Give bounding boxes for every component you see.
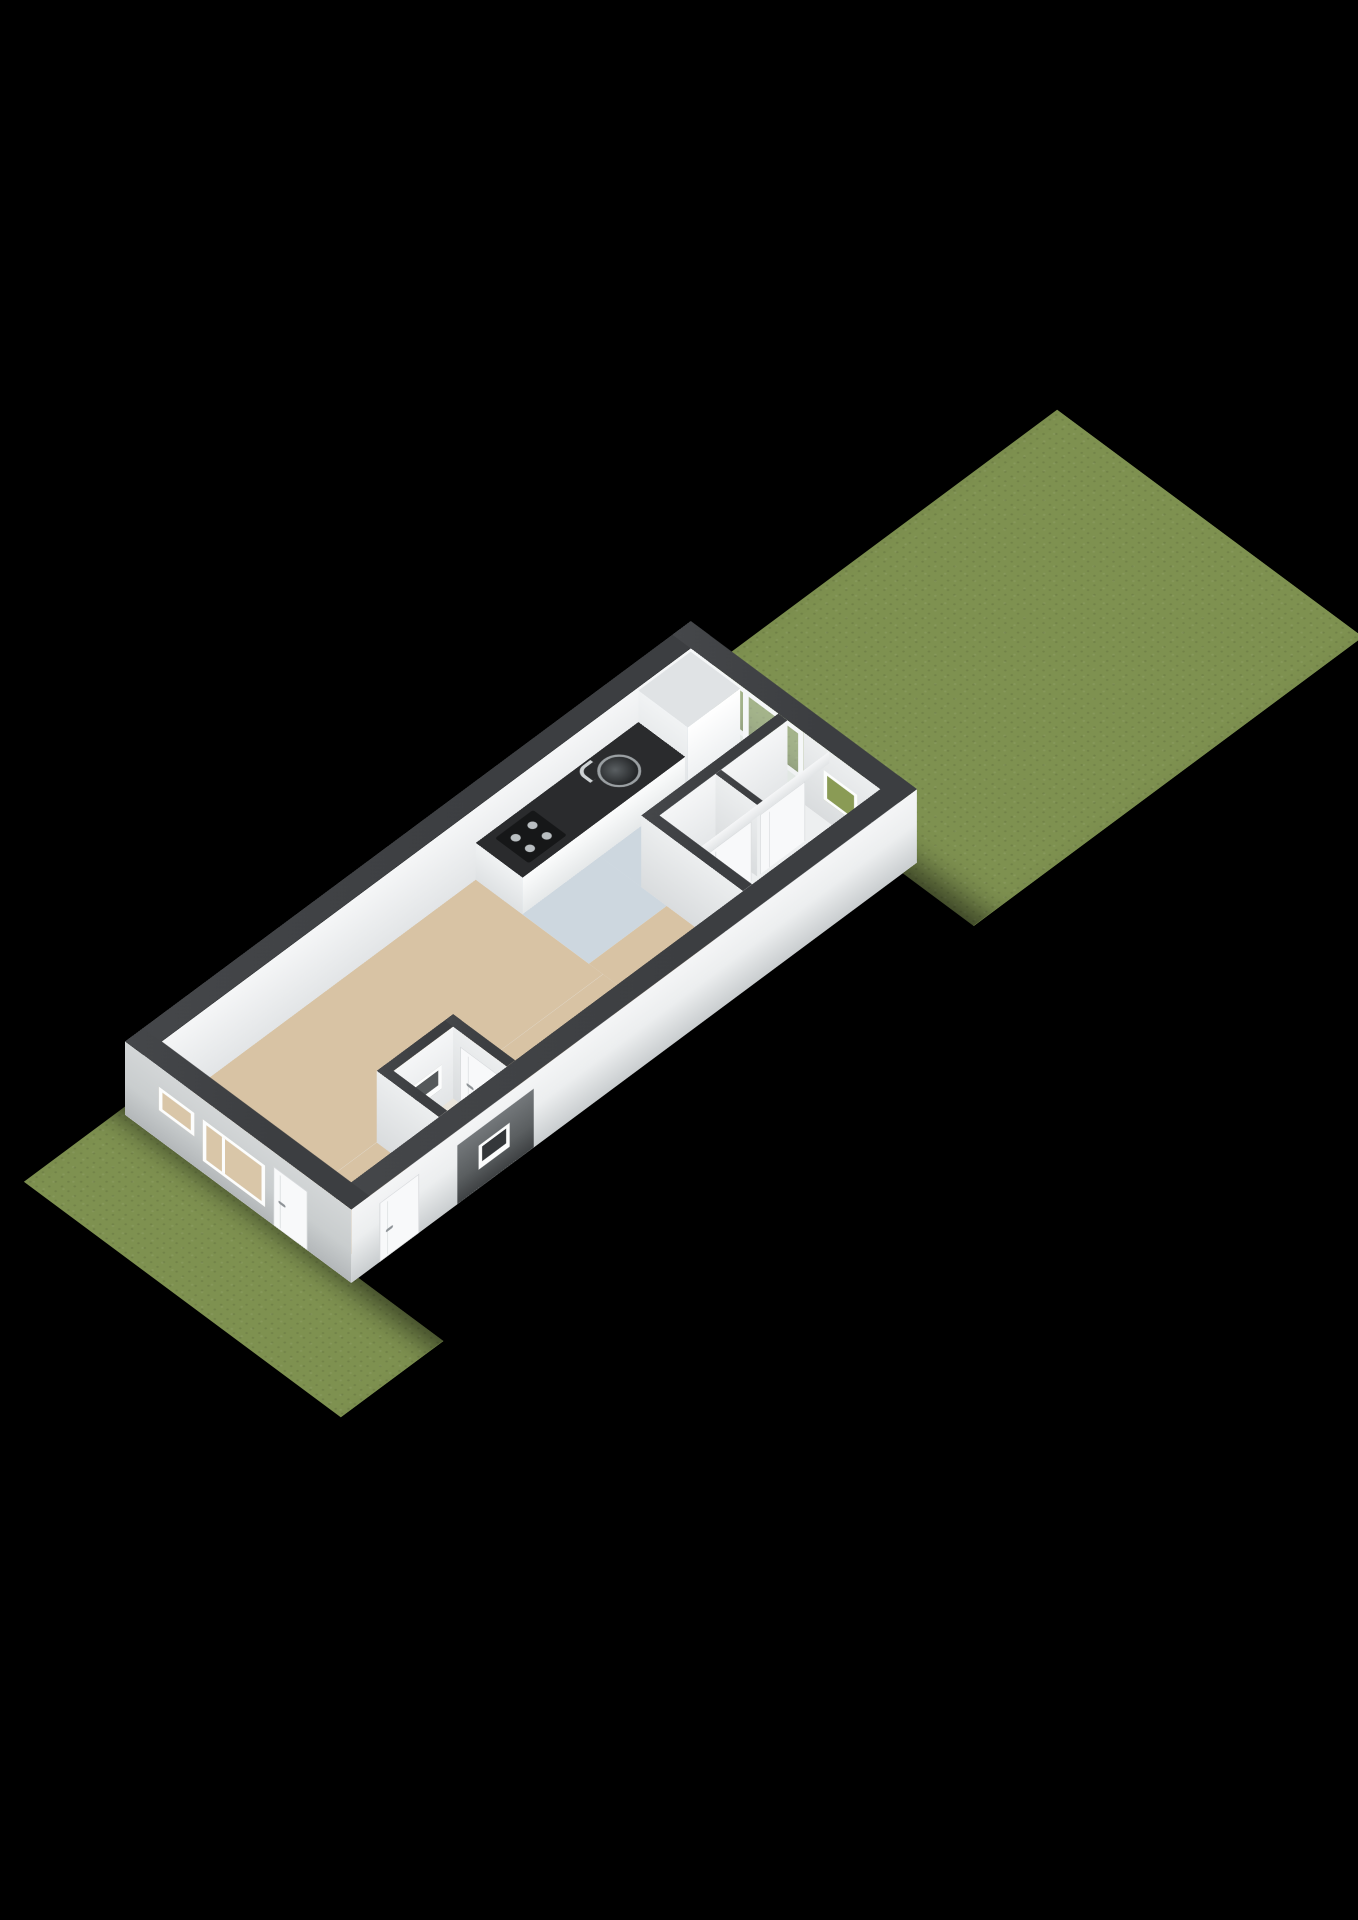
facade-door-se xyxy=(380,1174,420,1262)
floorplan-canvas: { "title": "3D axonometric floorplan ren… xyxy=(0,0,1358,1920)
facade-small-window xyxy=(159,1087,194,1137)
door-panel-line xyxy=(769,812,770,868)
porch-inner-window xyxy=(479,1123,510,1170)
